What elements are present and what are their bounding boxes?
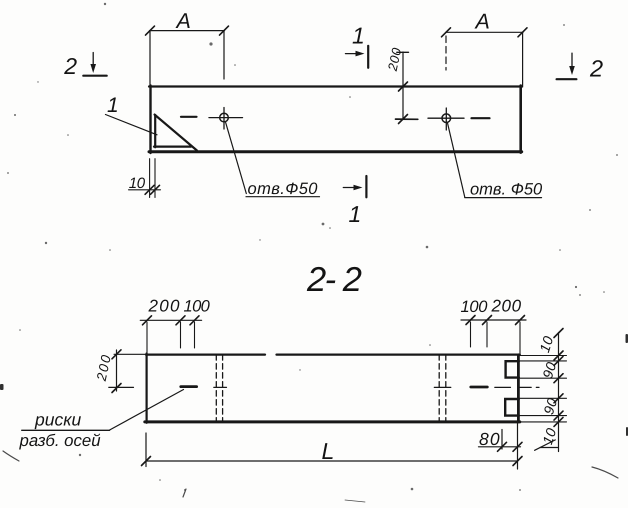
svg-text:риски: риски (34, 410, 81, 430)
svg-text:отв. Ф50: отв. Ф50 (470, 181, 543, 199)
svg-text:100: 100 (461, 298, 489, 316)
svg-text:100: 100 (184, 298, 211, 316)
svg-text:10: 10 (536, 334, 556, 355)
svg-text:разб. осей: разб. осей (19, 431, 101, 450)
svg-text:200: 200 (94, 352, 115, 383)
svg-text:1: 1 (352, 23, 365, 49)
svg-text:отв.Ф50: отв.Ф50 (248, 180, 319, 198)
svg-text:2: 2 (589, 56, 603, 82)
svg-text:2: 2 (63, 53, 77, 79)
svg-text:200: 200 (491, 297, 522, 316)
svg-text:80: 80 (479, 429, 501, 449)
svg-text:A: A (474, 9, 490, 33)
svg-text:200: 200 (385, 46, 405, 73)
svg-text:1: 1 (107, 94, 119, 117)
svg-text:A: A (175, 9, 191, 33)
svg-text:2- 2: 2- 2 (306, 261, 362, 299)
svg-text:10: 10 (129, 175, 146, 192)
svg-text:1: 1 (349, 201, 362, 227)
svg-text:200: 200 (148, 297, 181, 316)
svg-text:L: L (322, 438, 335, 464)
